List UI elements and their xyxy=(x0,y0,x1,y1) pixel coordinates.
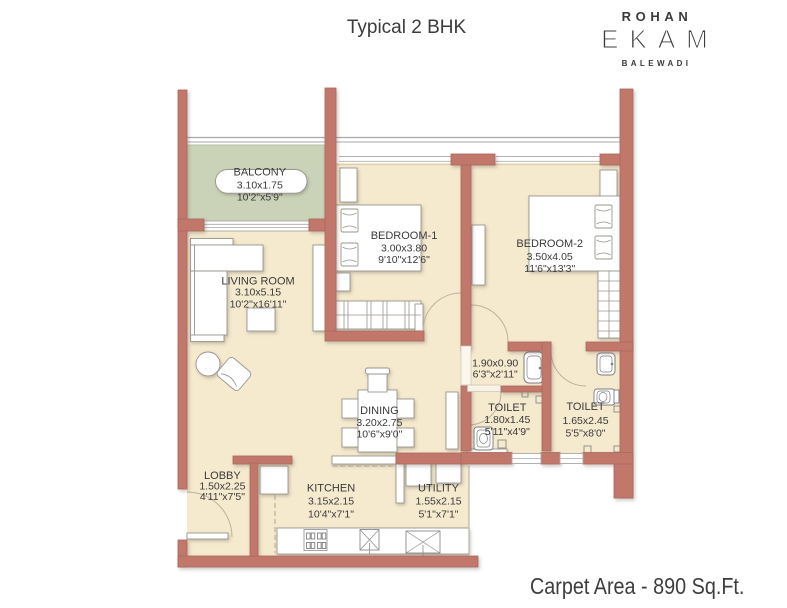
svg-text:9'10"x12'6": 9'10"x12'6" xyxy=(378,254,430,266)
svg-text:5'11"x4'9": 5'11"x4'9" xyxy=(485,426,530,438)
svg-text:3.10x5.15: 3.10x5.15 xyxy=(235,287,281,299)
svg-text:1.65x2.45: 1.65x2.45 xyxy=(562,415,608,427)
svg-text:10'2"x16'11": 10'2"x16'11" xyxy=(230,298,287,310)
svg-text:3.20x2.75: 3.20x2.75 xyxy=(356,417,402,429)
svg-text:5'5"x8'0": 5'5"x8'0" xyxy=(565,427,605,439)
svg-text:10'2"x5'9": 10'2"x5'9" xyxy=(237,192,283,204)
svg-text:3.10x1.75: 3.10x1.75 xyxy=(237,180,283,192)
svg-text:3.50x4.05: 3.50x4.05 xyxy=(527,251,573,263)
svg-text:1.80x1.45: 1.80x1.45 xyxy=(484,414,530,426)
svg-text:UTILITY: UTILITY xyxy=(418,482,460,494)
svg-text:BEDROOM-2: BEDROOM-2 xyxy=(516,238,583,250)
svg-text:10'4"x7'1": 10'4"x7'1" xyxy=(308,509,354,521)
svg-text:6'3"x2'11": 6'3"x2'11" xyxy=(473,369,518,381)
svg-text:DINING: DINING xyxy=(360,405,399,417)
svg-text:3.00x3.80: 3.00x3.80 xyxy=(381,242,427,254)
svg-text:1.55x2.15: 1.55x2.15 xyxy=(415,496,461,508)
svg-text:BEDROOM-1: BEDROOM-1 xyxy=(371,230,438,242)
svg-text:3.15x2.15: 3.15x2.15 xyxy=(308,496,354,508)
svg-text:11'6"x13'3": 11'6"x13'3" xyxy=(524,263,575,275)
svg-text:TOILET: TOILET xyxy=(566,401,605,413)
svg-text:5'1"x7'1": 5'1"x7'1" xyxy=(418,509,458,521)
svg-text:TOILET: TOILET xyxy=(488,402,527,414)
svg-text:BALCONY: BALCONY xyxy=(234,167,287,179)
svg-text:LIVING ROOM: LIVING ROOM xyxy=(221,275,294,287)
svg-text:4'11"x7'5": 4'11"x7'5" xyxy=(200,491,245,503)
svg-text:KITCHEN: KITCHEN xyxy=(307,482,355,494)
svg-text:10'6"x9'0": 10'6"x9'0" xyxy=(356,429,402,441)
